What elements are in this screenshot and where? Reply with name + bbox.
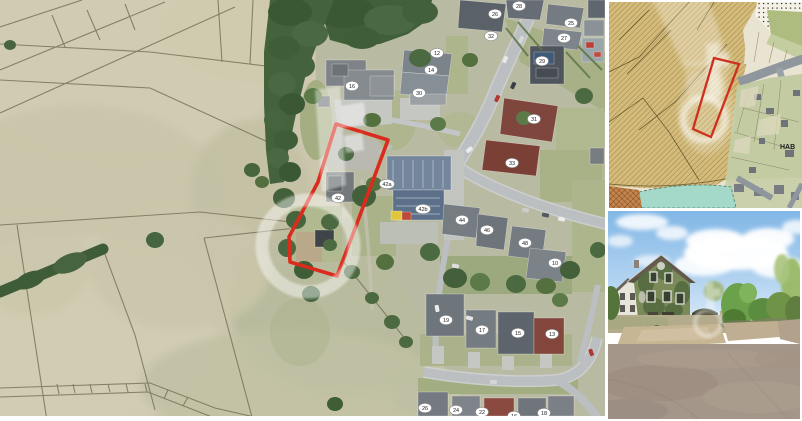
svg-text:29: 29 [539, 59, 545, 65]
svg-text:12: 12 [434, 51, 440, 57]
svg-text:44: 44 [459, 218, 465, 224]
svg-text:16: 16 [349, 84, 355, 90]
svg-text:14: 14 [428, 68, 434, 74]
svg-text:26: 26 [492, 12, 498, 18]
svg-text:33: 33 [509, 161, 515, 167]
svg-text:10: 10 [552, 261, 558, 267]
svg-text:46: 46 [484, 228, 490, 234]
svg-text:22: 22 [479, 410, 485, 416]
svg-text:18: 18 [541, 411, 547, 416]
svg-text:17: 17 [479, 328, 485, 334]
svg-text:32: 32 [488, 34, 494, 40]
svg-text:42b: 42b [418, 207, 427, 213]
svg-text:16: 16 [511, 414, 517, 416]
svg-text:13: 13 [549, 332, 555, 338]
svg-text:25: 25 [568, 21, 574, 27]
svg-text:31: 31 [531, 117, 537, 123]
svg-text:HAB: HAB [780, 144, 795, 151]
svg-text:15: 15 [515, 331, 521, 337]
svg-text:42: 42 [335, 196, 341, 202]
svg-text:26: 26 [422, 406, 428, 412]
svg-text:19: 19 [443, 318, 449, 324]
svg-text:30: 30 [416, 91, 422, 97]
svg-text:42a: 42a [382, 182, 392, 188]
svg-text:28: 28 [516, 4, 522, 10]
svg-text:48: 48 [522, 241, 528, 247]
svg-text:27: 27 [561, 36, 567, 42]
svg-text:24: 24 [453, 408, 459, 414]
